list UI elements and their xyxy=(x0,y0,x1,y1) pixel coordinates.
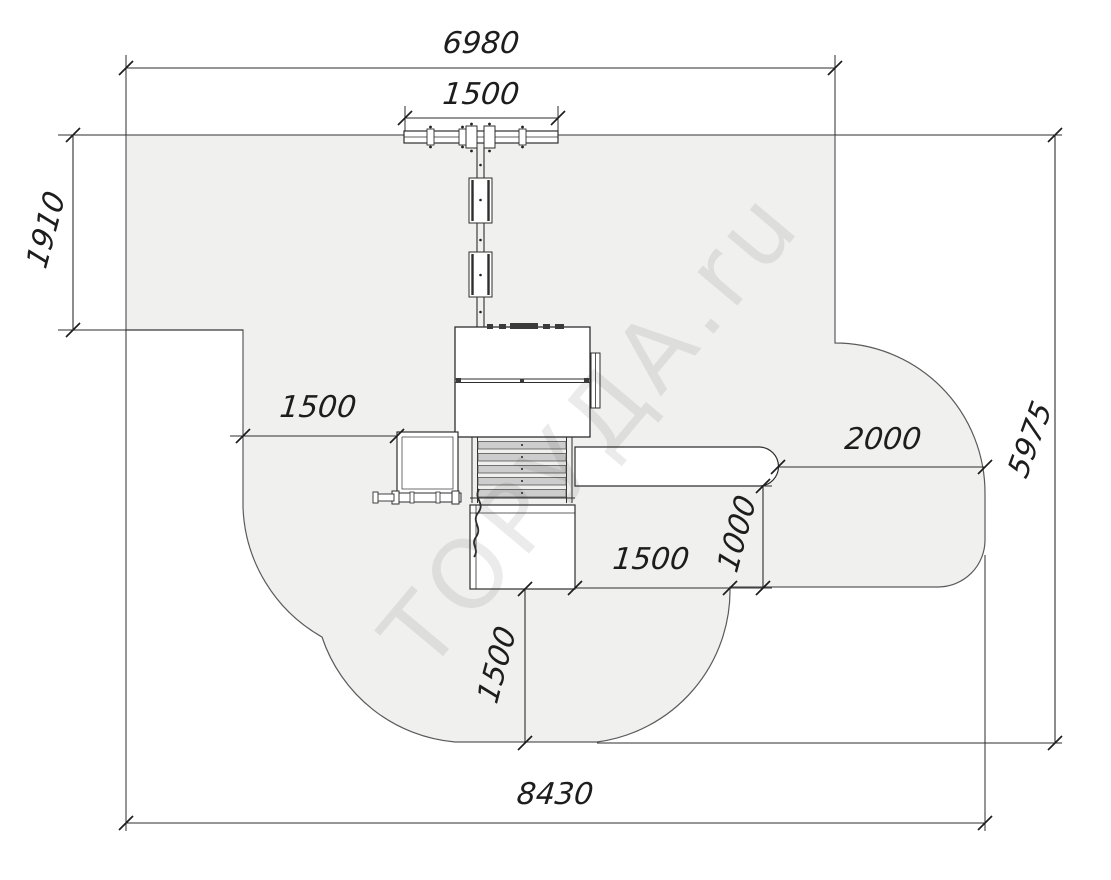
dim-slide-clearance: 2000 xyxy=(806,424,959,456)
climbing-ladder xyxy=(472,437,572,503)
dim-top-width: 6980 xyxy=(394,28,567,60)
tower-roof xyxy=(455,323,600,437)
dim-platform-clearance: 1500 xyxy=(574,544,727,576)
dim-left-clearance: 1500 xyxy=(241,392,394,424)
dim-total-width: 8430 xyxy=(468,779,641,811)
slide xyxy=(575,447,779,486)
plan-drawing-stage: ТОРУДА.ru 6980 1500 1910 1500 2000 5975 … xyxy=(0,0,1111,880)
dim-swing-beam: 1500 xyxy=(404,79,557,111)
